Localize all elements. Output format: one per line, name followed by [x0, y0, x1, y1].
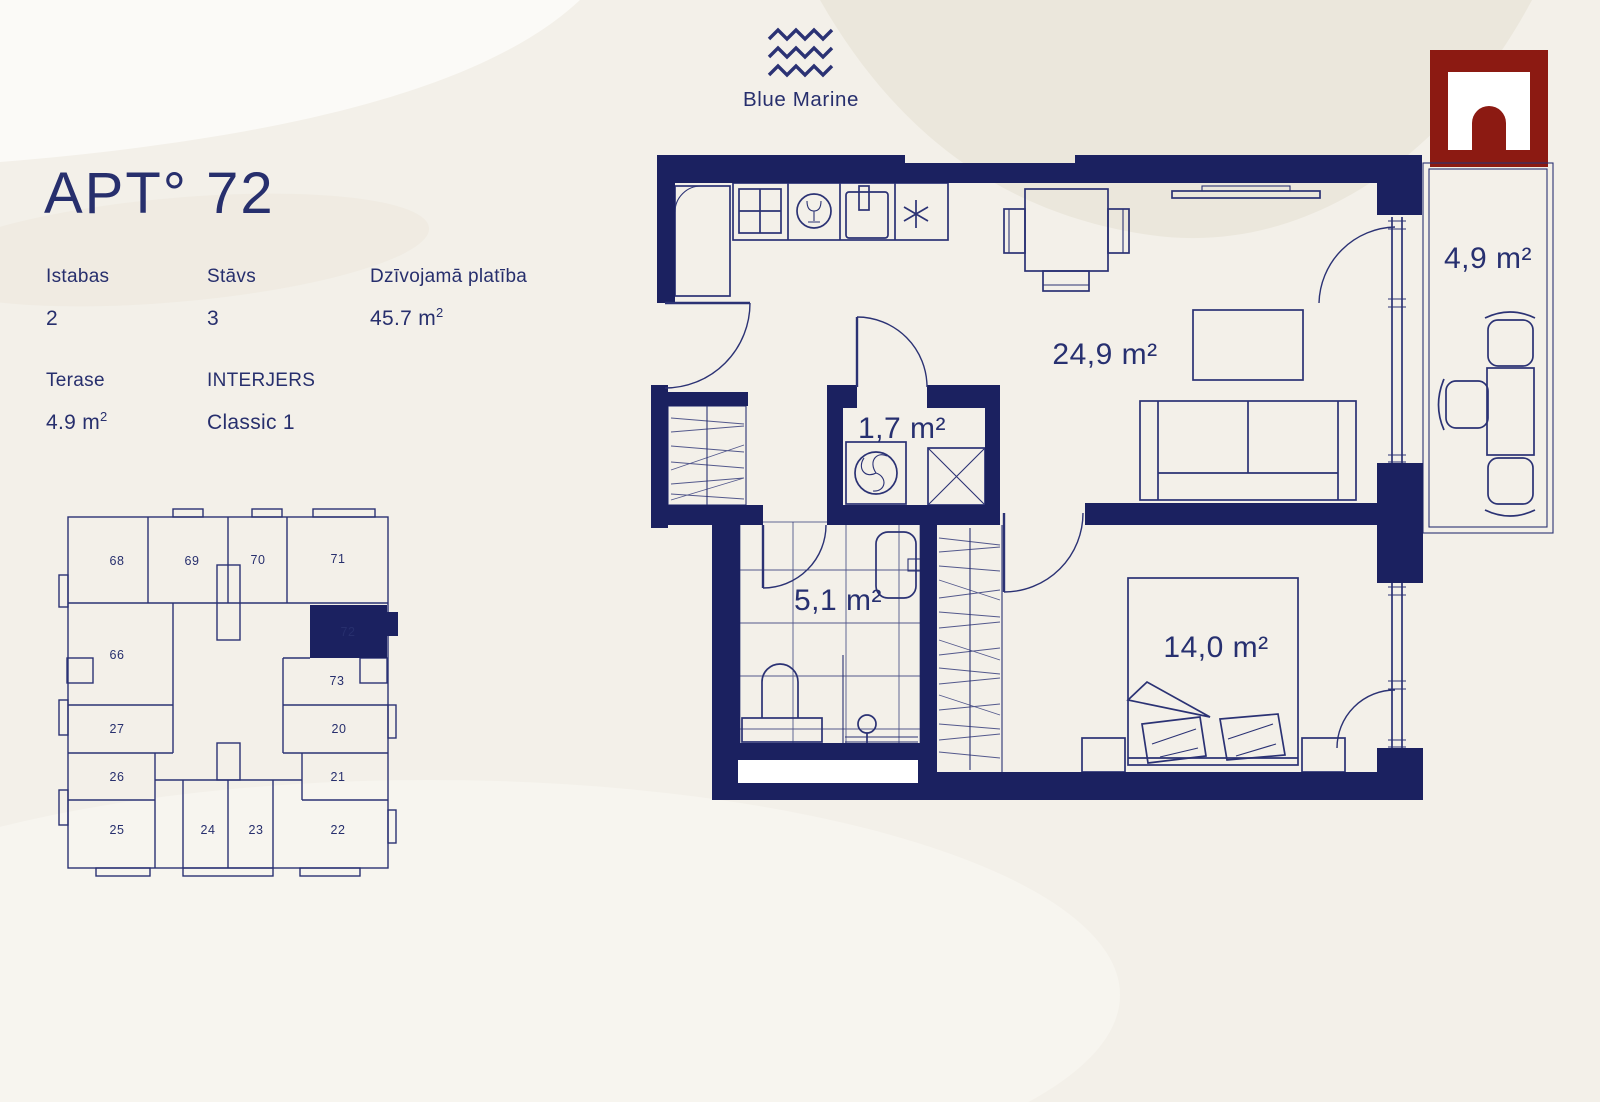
mini-unit-label: 27 [110, 722, 125, 736]
terrace-area-label: 4,9 m² [1444, 242, 1532, 275]
walls [651, 155, 1423, 800]
chair [1004, 209, 1025, 253]
mini-unit-label: 21 [331, 770, 346, 784]
mini-unit-label: 20 [332, 722, 347, 736]
terrace-chair [1439, 379, 1489, 430]
bedroom-wardrobe [939, 525, 1002, 772]
bedroom-door [1004, 513, 1083, 592]
mini-unit-label: 24 [201, 823, 216, 837]
terrace [1423, 163, 1553, 533]
field-value: 45.7 m2 [370, 305, 527, 331]
bathroom [740, 522, 928, 745]
shaft-icon [928, 448, 985, 505]
pillow [1220, 714, 1285, 760]
field-value: 3 [207, 305, 256, 331]
hall-closet [668, 406, 746, 505]
living-area-label: 24,9 m² [1052, 338, 1157, 371]
developer-logo [1430, 50, 1548, 167]
ventilation-fan-icon [846, 442, 906, 504]
terrace-table [1487, 368, 1534, 455]
sofa [1140, 401, 1356, 500]
field-interior: INTERJERS Classic 1 [207, 370, 315, 435]
bed [1128, 578, 1298, 765]
sink-icon [846, 186, 888, 238]
bedroom-area-label: 14,0 m² [1163, 631, 1268, 664]
field-label: INTERJERS [207, 370, 315, 392]
dishwasher-icon [797, 194, 831, 228]
terrace-chair [1485, 458, 1535, 516]
field-label: Dzīvojamā platība [370, 266, 527, 288]
mini-unit-label-highlighted: 72 [341, 625, 356, 639]
kitchen-tall-cabinet [675, 186, 730, 296]
floorplan-sheet: Blue Marine [0, 0, 1600, 1102]
field-label: Terase [46, 370, 108, 392]
field-living-area: Dzīvojamā platība 45.7 m2 [370, 266, 527, 331]
mini-unit-label: 66 [110, 648, 125, 662]
kitchen [675, 183, 948, 296]
field-value: Classic 1 [207, 409, 315, 435]
blanket-fold [1128, 682, 1210, 717]
bathroom-area-label: 5,1 m² [794, 584, 882, 617]
terrace-chair [1485, 312, 1535, 366]
wc-room [846, 442, 985, 505]
main-floorplan: 24,9 m² 1,7 m² 5,1 m² 14,0 m² 4,9 m² [651, 155, 1553, 800]
fridge-icon [904, 200, 928, 228]
chair [1043, 271, 1089, 291]
bathroom-door [763, 525, 826, 588]
brand-logo: Blue Marine [743, 30, 859, 111]
waves-icon [769, 30, 832, 75]
mini-unit-label: 69 [185, 554, 200, 568]
wall-inset [738, 760, 918, 783]
doors [665, 227, 1395, 748]
shower-icon [843, 655, 918, 745]
nightstand [1302, 738, 1345, 772]
field-value: 2 [46, 305, 109, 331]
mini-unit-label: 70 [251, 553, 266, 567]
room-labels: 24,9 m² 1,7 m² 5,1 m² 14,0 m² 4,9 m² [794, 242, 1532, 664]
mini-unit-label: 71 [331, 552, 346, 566]
brand-name: Blue Marine [743, 88, 859, 111]
field-value: 4.9 m2 [46, 409, 108, 435]
field-floor: Stāvs 3 [207, 266, 256, 331]
wc-door [857, 317, 927, 387]
mini-unit-label: 23 [249, 823, 264, 837]
pillow [1142, 717, 1206, 763]
entrance-door [665, 303, 750, 388]
field-terrace: Terase 4.9 m2 [46, 370, 108, 435]
arch-icon [1472, 106, 1506, 150]
mini-unit-label: 26 [110, 770, 125, 784]
coffee-table [1193, 310, 1303, 380]
field-label: Istabas [46, 266, 109, 288]
mini-unit-label: 25 [110, 823, 125, 837]
mini-unit-label: 68 [110, 554, 125, 568]
field-rooms: Istabas 2 [46, 266, 109, 331]
hob-icon [739, 189, 781, 233]
terrace-door-living [1319, 227, 1395, 303]
nightstand [1082, 738, 1125, 772]
mini-unit-label: 22 [331, 823, 346, 837]
field-label: Stāvs [207, 266, 256, 288]
mini-unit-label: 73 [330, 674, 345, 688]
wc-area-label: 1,7 m² [858, 412, 946, 445]
page-title: APT° 72 [44, 160, 275, 227]
